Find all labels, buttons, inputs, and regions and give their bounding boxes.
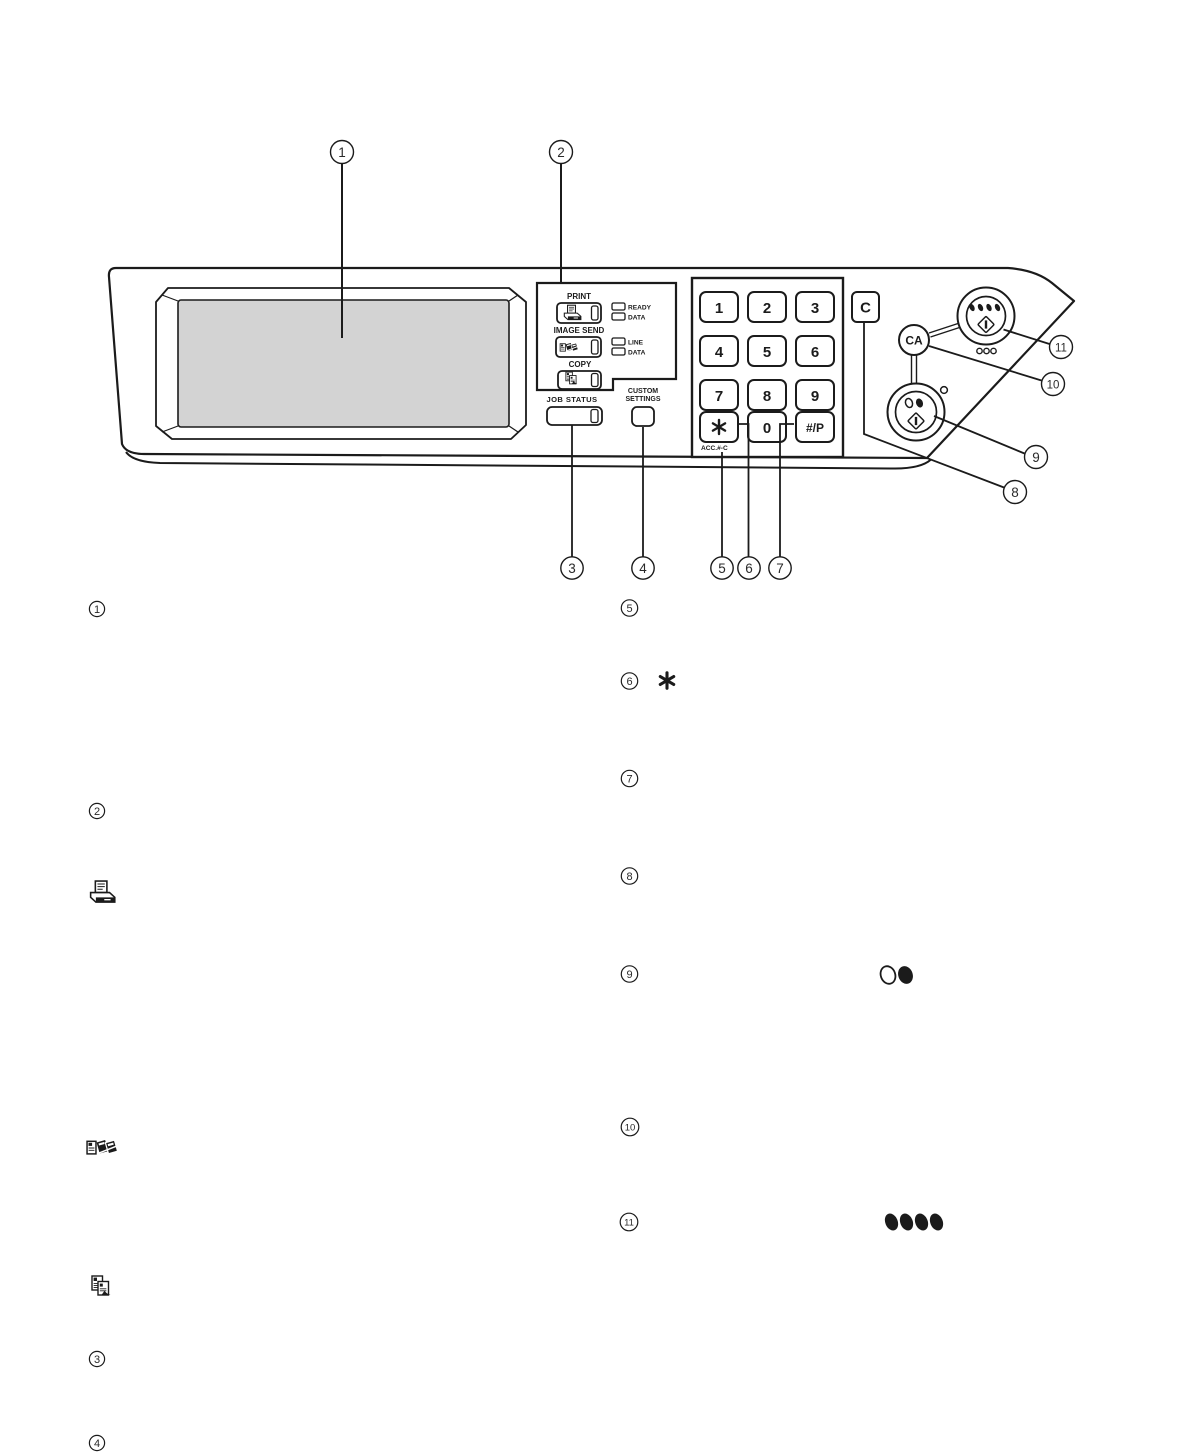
callout-5-num: 5	[718, 561, 726, 576]
custom-settings-label-2: SETTINGS	[625, 396, 660, 403]
status-keys: JOB STATUS CUSTOM SETTINGS	[547, 388, 661, 426]
clear-all-key-label: CA	[905, 334, 923, 348]
key-7-label: 7	[715, 388, 723, 405]
key-5-label: 5	[763, 344, 771, 361]
bw-start-key	[888, 384, 948, 441]
callout-1-num: 1	[338, 145, 346, 160]
legend-num-1: 1	[94, 604, 100, 616]
callout-9-num: 9	[1032, 450, 1040, 465]
leader-11	[1004, 330, 1050, 345]
callout-2-num: 2	[557, 145, 565, 160]
legend-right-column: 5 6 7 8 9 10 11	[620, 600, 945, 1233]
job-status-label: JOB STATUS	[547, 395, 598, 404]
copy-key-label: COPY	[569, 360, 592, 369]
copy-key-indicator	[592, 374, 599, 387]
callout-7-num: 7	[776, 561, 784, 576]
line-led-label: LINE	[628, 340, 644, 347]
print-key-label: PRINT	[567, 292, 591, 301]
line-led	[612, 338, 625, 345]
print-key-indicator	[592, 306, 599, 320]
three-dots-indicator	[977, 348, 996, 353]
clear-key-label: C	[860, 300, 871, 317]
color-start-key	[958, 288, 1015, 354]
copy-icon	[92, 1276, 111, 1295]
callout-10-num: 10	[1047, 380, 1060, 392]
legend-num-4: 4	[94, 1438, 100, 1450]
send-data-led-label: DATA	[628, 350, 646, 357]
key-9-label: 9	[811, 388, 819, 405]
legend-num-7: 7	[626, 774, 632, 786]
touch-panel-screen	[178, 300, 509, 427]
print-data-led	[612, 313, 625, 320]
legend-num-5: 5	[626, 603, 632, 615]
key-2-label: 2	[763, 300, 771, 317]
legend-num-3: 3	[94, 1354, 100, 1366]
manual-page: PRINT READY DATA IMAGE SEND LINE DATA CO…	[0, 0, 1190, 1454]
color-dots-icon	[882, 1212, 945, 1233]
key-4-label: 4	[715, 344, 724, 361]
print-data-led-label: DATA	[628, 315, 646, 322]
ready-led	[612, 303, 625, 310]
legend-num-2: 2	[94, 806, 100, 818]
key-3-label: 3	[811, 300, 819, 317]
legend-num-11: 11	[624, 1218, 634, 1229]
asterisk-icon	[660, 673, 673, 688]
ready-led-label: READY	[628, 305, 652, 312]
legend-left-column: 1 2 3 4	[87, 601, 119, 1450]
legend-num-8: 8	[626, 871, 632, 883]
legend-num-10: 10	[625, 1123, 636, 1134]
callout-11-num: 11	[1055, 343, 1067, 355]
operation-panel-diagram: PRINT READY DATA IMAGE SEND LINE DATA CO…	[0, 0, 1190, 1454]
key-6-label: 6	[811, 344, 819, 361]
key-1-label: 1	[715, 300, 723, 317]
mode-select-block: PRINT READY DATA IMAGE SEND LINE DATA CO…	[537, 283, 676, 390]
printer-icon	[91, 881, 115, 902]
legend-num-9: 9	[626, 969, 632, 981]
key-8-label: 8	[763, 388, 771, 405]
callout-8-num: 8	[1011, 485, 1019, 500]
acc-hash-c-label: ACC.#-C	[701, 445, 728, 452]
image-send-key-indicator	[592, 340, 599, 354]
callout-4-num: 4	[639, 561, 647, 576]
key-hash-p-label: #/P	[806, 421, 824, 435]
key-0-label: 0	[763, 420, 771, 437]
image-send-icon	[87, 1137, 119, 1157]
bw-start-indicator	[941, 387, 948, 394]
image-send-key-label: IMAGE SEND	[554, 326, 605, 335]
legend-num-6: 6	[626, 676, 632, 688]
callout-3-num: 3	[568, 561, 576, 576]
callout-6-num: 6	[745, 561, 753, 576]
send-data-led	[612, 348, 625, 355]
custom-settings-key	[632, 407, 654, 426]
job-status-key-indicator	[591, 410, 598, 423]
custom-settings-label-1: CUSTOM	[628, 388, 658, 395]
bw-dots-icon	[878, 964, 915, 986]
numeric-keypad: 1 2 3 4 5 6 7 8 9 0 #/P ACC.#-C	[692, 278, 843, 457]
